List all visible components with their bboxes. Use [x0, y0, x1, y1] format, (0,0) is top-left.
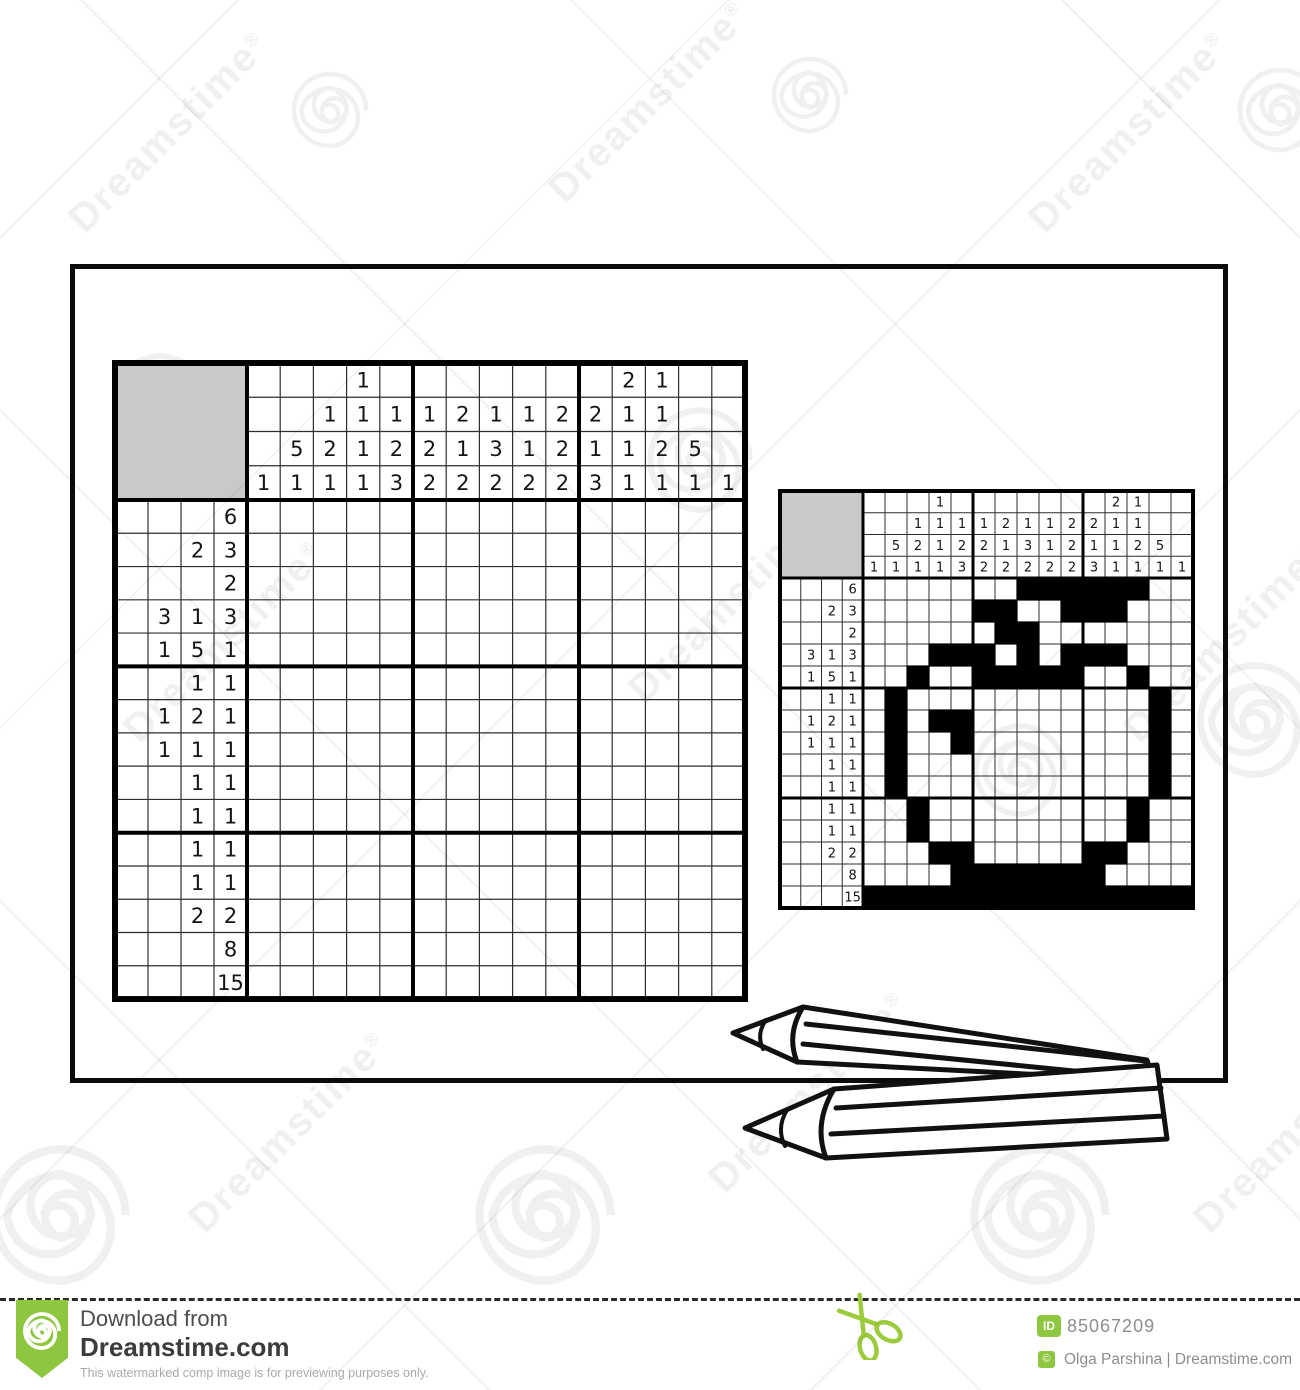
- col-clue: 3: [589, 471, 602, 495]
- solved-grid-svg: 1511211111123122212132112222213211111215…: [778, 489, 1195, 910]
- row-clue: 1: [828, 737, 836, 752]
- solution-cell: [1060, 577, 1083, 600]
- solution-cell: [1016, 621, 1039, 644]
- solution-cell: [950, 643, 973, 666]
- solution-cell: [950, 731, 973, 754]
- col-clue: 5: [892, 539, 900, 554]
- solution-cell: [928, 885, 951, 908]
- solution-cell: [884, 731, 907, 754]
- row-clue: 1: [828, 825, 836, 840]
- col-clue: 1: [1134, 517, 1142, 532]
- row-clue: 2: [828, 605, 836, 620]
- solution-cell: [1104, 643, 1127, 666]
- solution-cell: [1016, 863, 1039, 886]
- col-clue: 2: [1134, 539, 1142, 554]
- col-clue: 3: [489, 437, 502, 461]
- row-clue: 3: [224, 538, 237, 562]
- solution-cell: [1082, 863, 1105, 886]
- solution-cell: [1170, 885, 1193, 908]
- clue-corner: [115, 363, 247, 500]
- row-clue: 1: [848, 693, 856, 708]
- row-clue: 1: [224, 871, 237, 895]
- row-clue: 15: [217, 971, 244, 995]
- col-clue: 1: [689, 471, 702, 495]
- col-clue: 1: [914, 517, 922, 532]
- col-clue: 1: [357, 471, 370, 495]
- col-clue: 1: [870, 561, 878, 576]
- solution-cell: [1016, 643, 1039, 666]
- row-clue: 2: [848, 627, 856, 642]
- row-clue: 2: [191, 705, 204, 729]
- row-clue: 15: [844, 891, 861, 906]
- solution-cell: [884, 753, 907, 776]
- col-clue: 2: [589, 403, 602, 427]
- col-clue: 2: [556, 471, 569, 495]
- solution-cell: [1148, 885, 1171, 908]
- row-clue: 2: [828, 847, 836, 862]
- row-clue: 1: [224, 804, 237, 828]
- col-clue: 1: [523, 403, 536, 427]
- solution-cell: [928, 709, 951, 732]
- watermark-brand-text: Dreamstime®: [1020, 23, 1239, 242]
- solution-cell: [1038, 885, 1061, 908]
- solution-cell: [1038, 665, 1061, 688]
- col-clue: 1: [655, 403, 668, 427]
- watermark-brand-text: Dreamstime®: [540, 0, 759, 212]
- row-clue: 1: [848, 781, 856, 796]
- solution-cell: [1082, 885, 1105, 908]
- row-clue: 1: [848, 803, 856, 818]
- col-clue: 1: [622, 437, 635, 461]
- row-clue: 2: [191, 904, 204, 928]
- row-clue: 6: [848, 583, 856, 598]
- solution-cell: [1060, 665, 1083, 688]
- site-name-label: Dreamstime.com: [80, 1332, 290, 1363]
- row-clue: 1: [158, 705, 171, 729]
- row-clue: 3: [224, 605, 237, 629]
- row-clue: 1: [224, 671, 237, 695]
- col-clue: 3: [958, 561, 966, 576]
- row-clue: 6: [224, 505, 237, 529]
- solution-cell: [950, 863, 973, 886]
- spiral-logo-icon: [16, 1300, 68, 1360]
- solution-cell: [906, 797, 929, 820]
- row-clue: 1: [191, 605, 204, 629]
- solution-cell: [1104, 577, 1127, 600]
- download-from-label: Download from: [80, 1306, 228, 1332]
- author-credit: Olga Parshina | Dreamstime.com: [1064, 1351, 1292, 1369]
- row-clue: 1: [191, 838, 204, 862]
- copyright-badge: ©: [1038, 1351, 1055, 1368]
- solution-cell: [972, 643, 995, 666]
- col-clue: 2: [456, 403, 469, 427]
- col-clue: 1: [1134, 495, 1142, 510]
- row-clue: 1: [224, 838, 237, 862]
- row-clue: 1: [828, 781, 836, 796]
- row-clue: 3: [807, 649, 815, 664]
- image-id-number: 85067209: [1067, 1316, 1155, 1337]
- row-clue: 1: [158, 738, 171, 762]
- col-clue: 1: [589, 437, 602, 461]
- watermark-spiral-icon: [1230, 60, 1300, 165]
- col-clue: 2: [323, 437, 336, 461]
- col-clue: 2: [914, 539, 922, 554]
- col-clue: 2: [423, 471, 436, 495]
- col-clue: 2: [1090, 517, 1098, 532]
- col-clue: 1: [1090, 539, 1098, 554]
- solution-cell: [1148, 731, 1171, 754]
- solution-cell: [1060, 643, 1083, 666]
- solution-filled-cells: [862, 577, 1193, 908]
- row-clue: 1: [848, 737, 856, 752]
- row-clue: 2: [224, 572, 237, 596]
- solution-cell: [972, 885, 995, 908]
- solution-cell: [1126, 819, 1149, 842]
- row-clue: 2: [828, 715, 836, 730]
- col-clue: 1: [936, 495, 944, 510]
- pencil-top: [733, 1007, 1149, 1077]
- row-clue: 1: [224, 638, 237, 662]
- solution-cell: [906, 885, 929, 908]
- col-clue: 2: [489, 471, 502, 495]
- solution-cell: [972, 863, 995, 886]
- solution-cell: [1148, 687, 1171, 710]
- nonogram-solved-apple: 1511211111123122212132112222213211111215…: [778, 489, 1195, 915]
- solution-cell: [1104, 599, 1127, 622]
- dashed-cut-line: [0, 1298, 1300, 1301]
- watermark-spiral-icon: [463, 1133, 627, 1302]
- solution-cell: [884, 775, 907, 798]
- col-clue: 5: [689, 437, 702, 461]
- col-clue: 1: [655, 368, 668, 392]
- solution-cell: [1016, 885, 1039, 908]
- col-clue: 1: [655, 471, 668, 495]
- row-clue: 8: [848, 869, 856, 884]
- solution-cell: [906, 819, 929, 842]
- solution-cell: [1060, 863, 1083, 886]
- watermark-spiral-icon: [285, 65, 375, 160]
- solution-cell: [1082, 643, 1105, 666]
- col-clue: 2: [1068, 517, 1076, 532]
- col-clue: 1: [323, 403, 336, 427]
- row-clue: 1: [191, 771, 204, 795]
- solution-cell: [950, 885, 973, 908]
- solution-cell: [928, 841, 951, 864]
- solution-cell: [1148, 753, 1171, 776]
- col-clue: 2: [1024, 561, 1032, 576]
- solution-cell: [884, 709, 907, 732]
- col-clue: 1: [980, 517, 988, 532]
- solution-cell: [994, 863, 1017, 886]
- col-clue: 5: [1156, 539, 1164, 554]
- row-clue: 3: [848, 605, 856, 620]
- col-clue: 1: [892, 561, 900, 576]
- solution-cell: [884, 885, 907, 908]
- col-clue: 1: [357, 437, 370, 461]
- col-clue: 1: [257, 471, 270, 495]
- solution-cell: [994, 665, 1017, 688]
- row-clue: 1: [191, 738, 204, 762]
- col-clue: 1: [489, 403, 502, 427]
- solution-cell: [1060, 599, 1083, 622]
- col-clue: 1: [622, 403, 635, 427]
- col-clue: 3: [1090, 561, 1098, 576]
- col-clue: 1: [914, 561, 922, 576]
- col-clue: 1: [1178, 561, 1186, 576]
- col-clue: 2: [390, 437, 403, 461]
- col-clue: 2: [423, 437, 436, 461]
- solution-cell: [1082, 577, 1105, 600]
- solution-cell: [928, 643, 951, 666]
- col-clue: 2: [655, 437, 668, 461]
- row-clue: 1: [807, 715, 815, 730]
- solution-cell: [1104, 841, 1127, 864]
- id-badge: ID: [1037, 1315, 1061, 1337]
- disclaimer-text: This watermarked comp image is for previ…: [80, 1366, 429, 1380]
- row-clue: 2: [191, 538, 204, 562]
- row-clue: 1: [807, 671, 815, 686]
- solution-cell: [1126, 577, 1149, 600]
- row-clue: 1: [224, 705, 237, 729]
- col-clue: 2: [1068, 561, 1076, 576]
- unsolved-grid-svg: 1511211111123122212132112222213211111215…: [112, 360, 748, 1002]
- col-clue: 1: [357, 403, 370, 427]
- stock-preview-page: { "watermark": { "brand": "Dreamstime", …: [0, 0, 1300, 1390]
- col-clue: 2: [958, 539, 966, 554]
- col-clue: 1: [1112, 561, 1120, 576]
- col-clue: 1: [1046, 517, 1054, 532]
- col-clue: 1: [936, 539, 944, 554]
- solution-cell: [972, 665, 995, 688]
- clue-corner: [780, 491, 863, 578]
- col-clue: 2: [1046, 561, 1054, 576]
- col-clue: 3: [390, 471, 403, 495]
- solution-cell: [1038, 863, 1061, 886]
- col-clue: 1: [722, 471, 735, 495]
- solution-cell: [1148, 709, 1171, 732]
- row-clue: 1: [828, 649, 836, 664]
- solution-cell: [994, 885, 1017, 908]
- row-clue: 5: [191, 638, 204, 662]
- solution-cell: [1016, 665, 1039, 688]
- pencil-bottom: [745, 1065, 1167, 1158]
- row-clue: 1: [848, 671, 856, 686]
- col-clue: 1: [1134, 561, 1142, 576]
- solution-cell: [1126, 885, 1149, 908]
- solution-cell: [950, 841, 973, 864]
- watermark-spiral-icon: [765, 50, 855, 145]
- col-clue: 1: [290, 471, 303, 495]
- col-clue: 2: [523, 471, 536, 495]
- solution-cell: [1082, 841, 1105, 864]
- col-clue: 3: [1024, 539, 1032, 554]
- row-clue: 1: [158, 638, 171, 662]
- col-clue: 1: [456, 437, 469, 461]
- solution-cell: [994, 599, 1017, 622]
- solution-cell: [1148, 775, 1171, 798]
- col-clue: 2: [556, 403, 569, 427]
- row-clue: 1: [828, 803, 836, 818]
- col-clue: 1: [1156, 561, 1164, 576]
- solution-cell: [906, 665, 929, 688]
- row-clue: 5: [828, 671, 836, 686]
- solution-cell: [1104, 885, 1127, 908]
- col-clue: 1: [357, 368, 370, 392]
- col-clue: 2: [556, 437, 569, 461]
- col-clue: 1: [936, 517, 944, 532]
- col-clue: 2: [980, 561, 988, 576]
- col-clue: 1: [523, 437, 536, 461]
- row-clue: 1: [848, 759, 856, 774]
- scissors-icon: [818, 1290, 913, 1360]
- col-clue: 2: [1112, 495, 1120, 510]
- footer-bar: Download from Dreamstime.com This waterm…: [0, 1290, 1300, 1390]
- solution-cell: [1126, 797, 1149, 820]
- solution-cell: [862, 885, 885, 908]
- col-clue: 5: [290, 437, 303, 461]
- watermark-brand-text: Dreamstime®: [60, 23, 279, 242]
- row-clue: 2: [848, 847, 856, 862]
- watermark-spiral-icon: [0, 1133, 142, 1302]
- solution-cell: [1126, 665, 1149, 688]
- col-clue: 2: [980, 539, 988, 554]
- row-clue: 1: [848, 715, 856, 730]
- col-clue: 2: [1068, 539, 1076, 554]
- col-clue: 2: [456, 471, 469, 495]
- col-clue: 1: [622, 471, 635, 495]
- row-clue: 2: [224, 904, 237, 928]
- solution-cell: [950, 709, 973, 732]
- col-clue: 1: [1112, 539, 1120, 554]
- col-clue: 1: [958, 517, 966, 532]
- solution-cell: [994, 621, 1017, 644]
- col-clue: 2: [622, 368, 635, 392]
- nonogram-unsolved: 1511211111123122212132112222213211111215…: [112, 360, 748, 1007]
- col-clue: 1: [1002, 539, 1010, 554]
- col-clue: 1: [390, 403, 403, 427]
- col-clue: 1: [936, 561, 944, 576]
- row-clue: 1: [224, 771, 237, 795]
- col-clue: 1: [423, 403, 436, 427]
- col-clue: 1: [1046, 539, 1054, 554]
- col-clue: 1: [1112, 517, 1120, 532]
- row-clue: 1: [191, 871, 204, 895]
- row-clue: 1: [224, 738, 237, 762]
- solution-cell: [1016, 577, 1039, 600]
- row-clue: 1: [191, 671, 204, 695]
- solution-cell: [884, 687, 907, 710]
- col-clue: 2: [1002, 517, 1010, 532]
- solution-cell: [1038, 577, 1061, 600]
- col-clue: 2: [1002, 561, 1010, 576]
- dreamstime-ribbon-logo: [16, 1300, 68, 1378]
- row-clue: 1: [191, 804, 204, 828]
- solution-cell: [1060, 885, 1083, 908]
- row-clue: 1: [848, 825, 856, 840]
- pencils-illustration: [676, 984, 1242, 1190]
- col-clue: 1: [1024, 517, 1032, 532]
- solution-cell: [972, 599, 995, 622]
- row-clue: 1: [807, 737, 815, 752]
- col-clue: 1: [323, 471, 336, 495]
- row-clue: 1: [828, 759, 836, 774]
- solution-cell: [1082, 599, 1105, 622]
- row-clue: 8: [224, 937, 237, 961]
- row-clue: 3: [158, 605, 171, 629]
- row-clue: 3: [848, 649, 856, 664]
- row-clue: 1: [828, 693, 836, 708]
